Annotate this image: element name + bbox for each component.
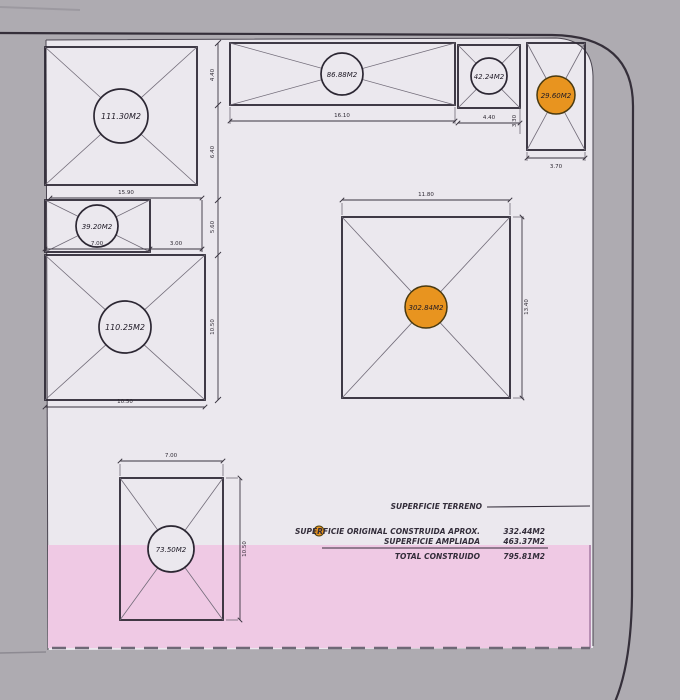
room-d-area-label: 29.60M2 [541, 92, 572, 100]
legend-ampliada-label: SUPERFICIE AMPLIADA [384, 537, 480, 546]
dim-chain-2: 6.40 [210, 145, 216, 158]
room-h-area-label: 73.50M2 [156, 546, 187, 554]
room-e-area-label: 39.20M2 [82, 223, 113, 231]
room-f-area-label: 110.25M2 [105, 323, 145, 332]
legend-original-label: SUPERFICIE ORIGINAL CONSTRUIDA APROX. [295, 527, 480, 536]
dim-chain-1: 4.40 [210, 68, 216, 81]
dim-h-height: 10.50 [242, 541, 248, 557]
dim-a-width: 15.90 [118, 190, 134, 196]
legend-total-label: TOTAL CONSTRUIDO [395, 552, 481, 561]
dim-e-extension: 3.00 [170, 241, 183, 247]
dim-c-width: 4.40 [483, 115, 496, 121]
room-g-area-label: 302.84M2 [409, 304, 445, 312]
legend-total-value: 795.81M2 [503, 552, 545, 561]
dim-d-width: 3.70 [550, 164, 563, 170]
site-plan-drawing: 111.30M2 86.88M2 42.24M2 29.60M2 39.20M2 [0, 0, 680, 700]
room-b-area-label: 86.88M2 [327, 71, 358, 79]
legend-ampliada-value: 463.37M2 [503, 537, 545, 546]
room-a-area-label: 111.30M2 [101, 112, 141, 121]
dim-g-width: 11.80 [418, 192, 434, 198]
dim-chain-4: 10.50 [210, 319, 216, 335]
dim-f-width: 10.50 [117, 399, 133, 405]
photographed-plan: 111.30M2 86.88M2 42.24M2 29.60M2 39.20M2 [0, 0, 680, 700]
lot-boundary-bottom-left [0, 652, 46, 653]
dim-b-width: 16.10 [334, 113, 350, 119]
dim-chain-3: 5.60 [210, 220, 216, 233]
room-c-area-label: 42.24M2 [474, 73, 505, 81]
dim-h-width: 7.00 [165, 453, 178, 459]
dim-e-width: 7.00 [91, 241, 104, 247]
legend-original-value: 332.44M2 [503, 527, 545, 536]
dim-d-height: 3.30 [512, 114, 518, 127]
dim-g-height: 13.40 [524, 299, 530, 315]
legend-terreno-label: SUPERFICIE TERRENO [391, 502, 483, 511]
